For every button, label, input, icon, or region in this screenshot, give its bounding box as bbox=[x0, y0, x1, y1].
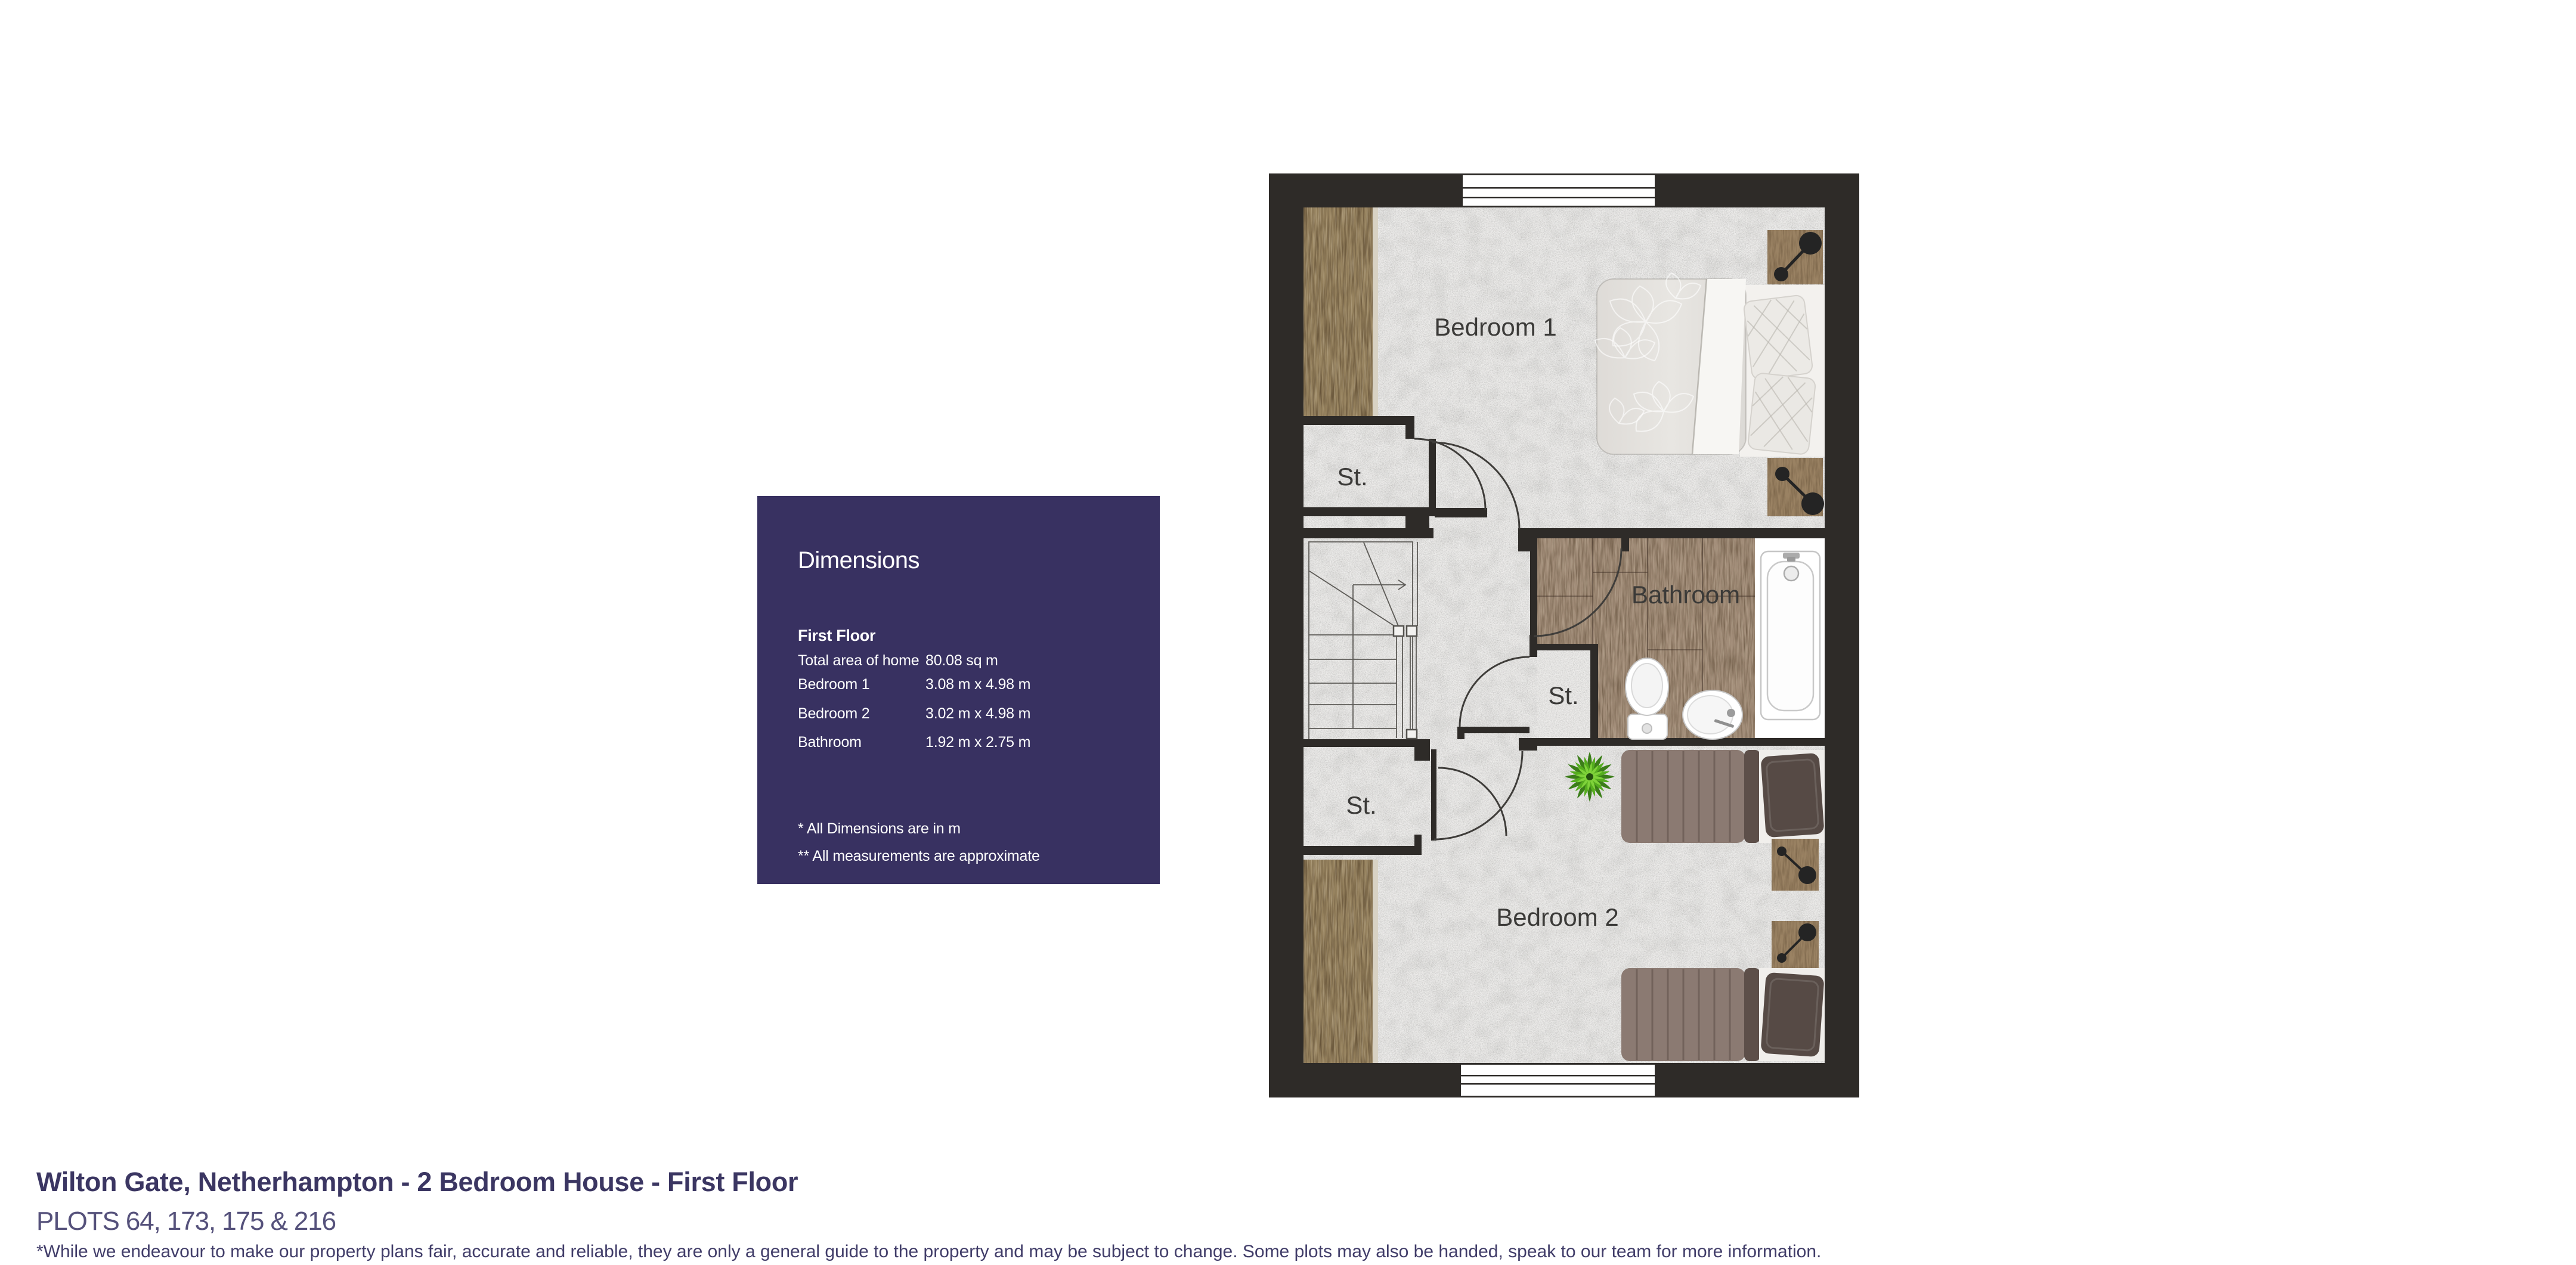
svg-text:* All Dimensions are in m: * All Dimensions are in m bbox=[798, 820, 961, 837]
svg-text:Dimensions: Dimensions bbox=[798, 547, 919, 573]
svg-text:3.08 m x 4.98 m: 3.08 m x 4.98 m bbox=[925, 676, 1030, 693]
svg-text:PLOTS 64, 173, 175 & 216: PLOTS 64, 173, 175 & 216 bbox=[36, 1207, 336, 1236]
svg-text:St.: St. bbox=[1346, 791, 1376, 819]
svg-text:3.02 m x 4.98 m: 3.02 m x 4.98 m bbox=[925, 705, 1030, 722]
svg-text:** All measurements are approx: ** All measurements are approximate bbox=[798, 848, 1040, 864]
svg-text:First Floor: First Floor bbox=[798, 627, 876, 644]
svg-text:Bathroom: Bathroom bbox=[798, 734, 862, 751]
svg-text:Wilton Gate, Netherhampton - 2: Wilton Gate, Netherhampton - 2 Bedroom H… bbox=[36, 1167, 798, 1197]
svg-text:Bedroom 1: Bedroom 1 bbox=[798, 676, 870, 693]
svg-text:1.92 m x 2.75 m: 1.92 m x 2.75 m bbox=[925, 734, 1030, 751]
svg-text:Bedroom 2: Bedroom 2 bbox=[798, 705, 870, 722]
svg-text:80.08 sq m: 80.08 sq m bbox=[925, 652, 998, 669]
svg-text:Bedroom 1: Bedroom 1 bbox=[1434, 313, 1556, 341]
svg-text:St.: St. bbox=[1548, 681, 1578, 709]
svg-text:St.: St. bbox=[1337, 463, 1367, 491]
svg-text:Bedroom 2: Bedroom 2 bbox=[1496, 903, 1618, 931]
svg-text:Bathroom: Bathroom bbox=[1631, 581, 1740, 609]
svg-text:Total area of home: Total area of home bbox=[798, 652, 919, 669]
svg-text:*While we endeavour to make ou: *While we endeavour to make our property… bbox=[36, 1242, 1821, 1261]
